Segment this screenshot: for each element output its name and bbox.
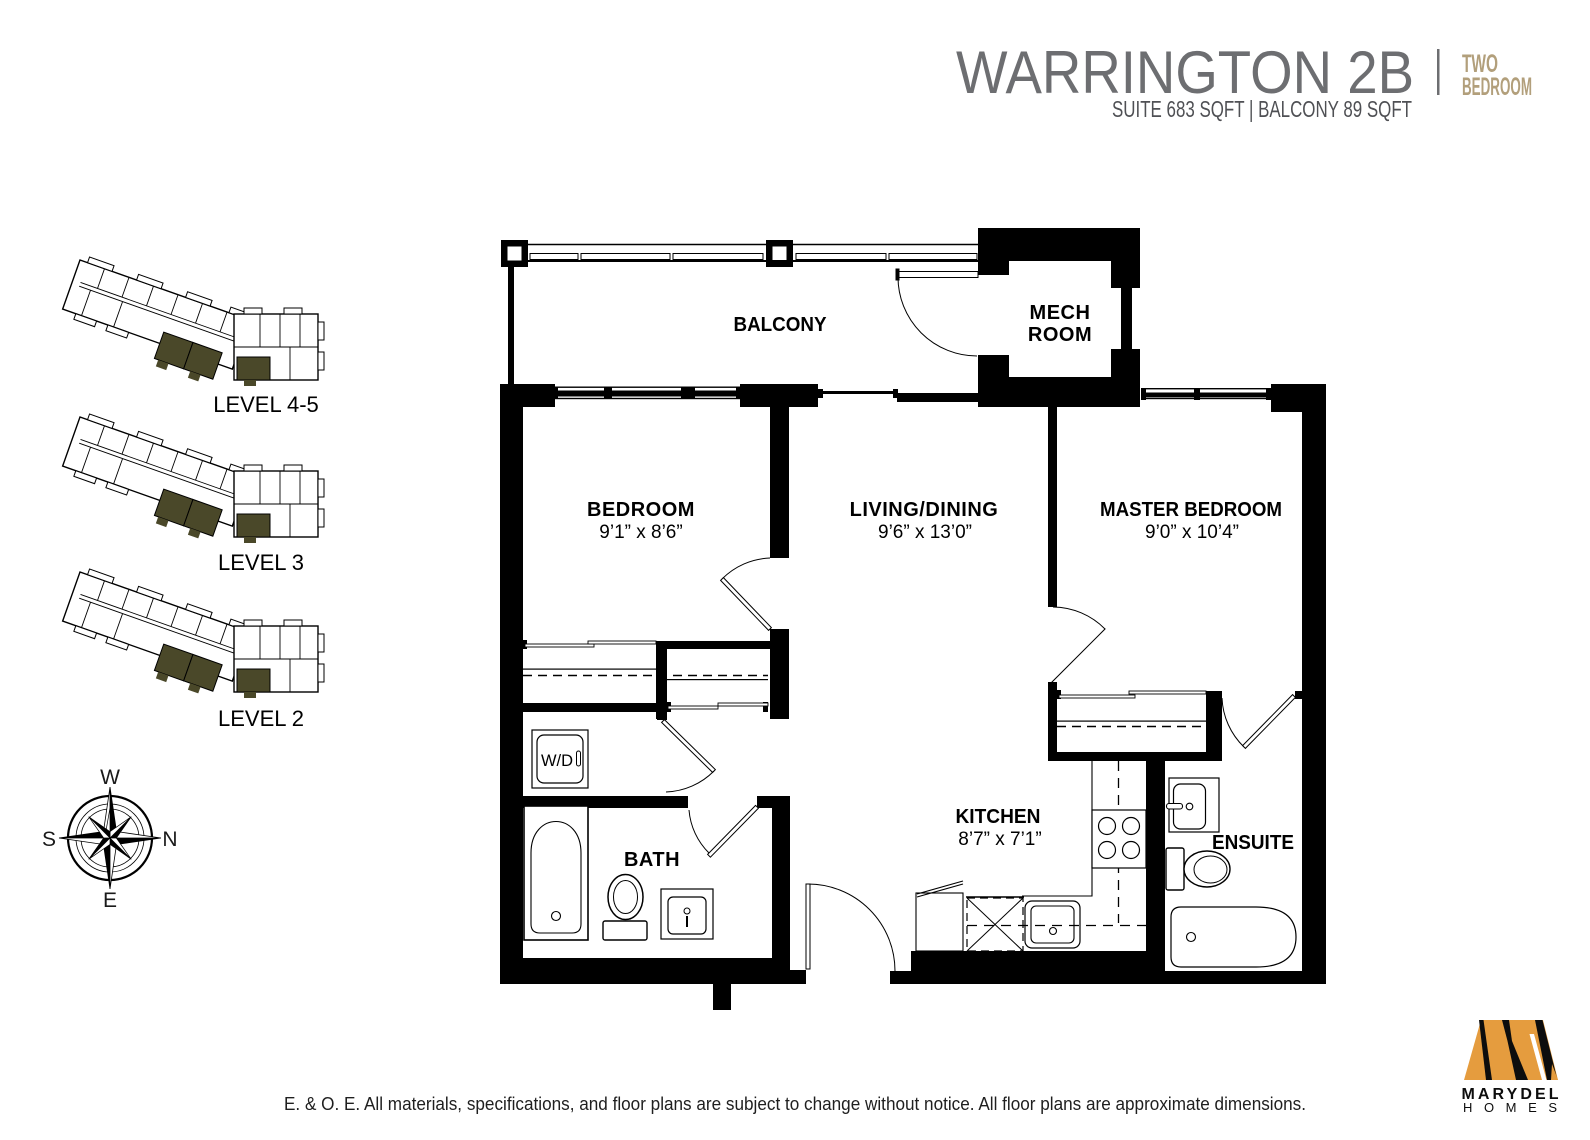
svg-text:8’7” x 7’1”: 8’7” x 7’1” (958, 829, 1041, 850)
svg-text:E. & O. E. All materials, spe: E. & O. E. All materials, specifications… (284, 1093, 1306, 1114)
svg-text:S: S (42, 828, 56, 851)
svg-text:SUITE 683 SQFT | BALCONY 89 SQ: SUITE 683 SQFT | BALCONY 89 SQFT (1112, 96, 1412, 122)
svg-text:MASTER BEDROOM: MASTER BEDROOM (1100, 499, 1282, 521)
svg-text:BATH: BATH (624, 849, 680, 871)
svg-text:LEVEL 3: LEVEL 3 (218, 550, 304, 575)
svg-text:N: N (162, 828, 177, 851)
svg-text:MECH: MECH (1030, 302, 1091, 324)
svg-text:W/D: W/D (541, 752, 573, 770)
svg-text:LEVEL 4-5: LEVEL 4-5 (213, 392, 319, 417)
svg-text:LIVING/DINING: LIVING/DINING (850, 499, 999, 521)
svg-text:LEVEL 2: LEVEL 2 (218, 706, 304, 731)
svg-text:BEDROOM: BEDROOM (587, 499, 695, 521)
svg-text:9’6” x 13’0”: 9’6” x 13’0” (878, 522, 972, 543)
svg-text:KITCHEN: KITCHEN (956, 806, 1041, 828)
svg-text:ENSUITE: ENSUITE (1212, 832, 1294, 854)
svg-text:E: E (103, 889, 117, 912)
svg-text:9’0” x 10’4”: 9’0” x 10’4” (1145, 522, 1239, 543)
svg-text:BALCONY: BALCONY (734, 314, 828, 336)
svg-text:W: W (100, 766, 120, 789)
svg-text:ROOM: ROOM (1028, 324, 1092, 346)
svg-text:BEDROOM: BEDROOM (1462, 73, 1532, 101)
svg-text:9’1” x 8’6”: 9’1” x 8’6” (599, 522, 682, 543)
